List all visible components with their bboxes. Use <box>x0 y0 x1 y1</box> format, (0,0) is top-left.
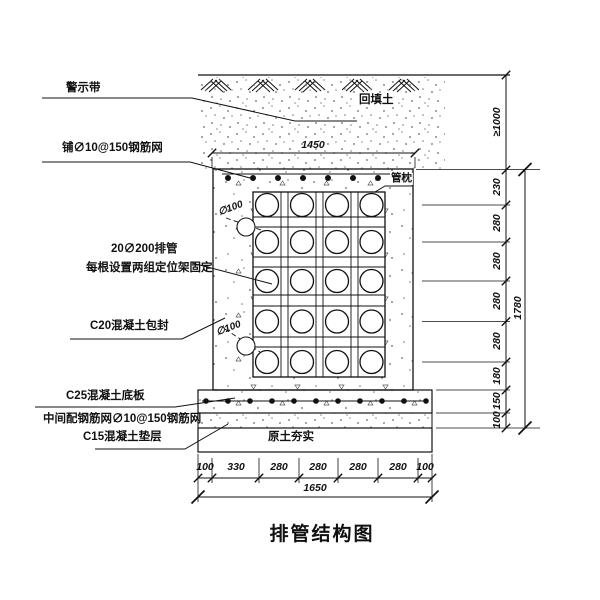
backfill-label: 回填土 <box>358 94 395 107</box>
top-mesh-label: 铺∅10@150钢筋网 <box>62 142 163 155</box>
dim-top-1450: 1450 <box>301 139 324 151</box>
c15-cushion-label: C15混凝土垫层 <box>83 431 162 444</box>
compacted-soil-label: 原土夯实 <box>268 431 314 444</box>
dim-right-seg-7: 100 <box>491 390 503 450</box>
drawing-title: 排管结构图 <box>269 519 374 546</box>
pipe-pillow-label: 管枕 <box>390 173 413 185</box>
backfill-soil-region <box>200 77 445 169</box>
dim-bottom-seg-6: 100 <box>416 461 434 473</box>
dim-bottom-seg-1: 330 <box>227 461 245 473</box>
pipes-count-label: 20∅200排管 <box>111 243 177 256</box>
dim-right-cover: ≥1000 <box>491 92 503 152</box>
dim-bottom-seg-5: 280 <box>389 461 407 473</box>
dim-bottom-seg-0: 100 <box>196 461 214 473</box>
warning-tape-label: 警示带 <box>66 82 101 95</box>
dim-bottom-seg-3: 280 <box>309 461 327 473</box>
dim-bottom-seg-4: 280 <box>349 461 367 473</box>
base-slab <box>198 390 432 452</box>
pipes-fixing-label: 每根设置两组定位架固定 <box>86 262 213 275</box>
c20-seal-label: C20混凝土包封 <box>90 320 169 333</box>
pipe-grid <box>253 192 385 377</box>
dim-bottom-seg-2: 280 <box>270 461 288 473</box>
mid-mesh-label: 中间配钢筋网∅10@150钢筋网 <box>43 413 201 426</box>
c25-slab-label: C25混凝土底板 <box>66 390 145 403</box>
dim-right-total-1780: 1780 <box>512 278 524 338</box>
drawing-canvas: 警示带 铺∅10@150钢筋网 20∅200排管 每根设置两组定位架固定 C20… <box>0 0 600 600</box>
dim-bottom-total-1650: 1650 <box>303 482 326 494</box>
